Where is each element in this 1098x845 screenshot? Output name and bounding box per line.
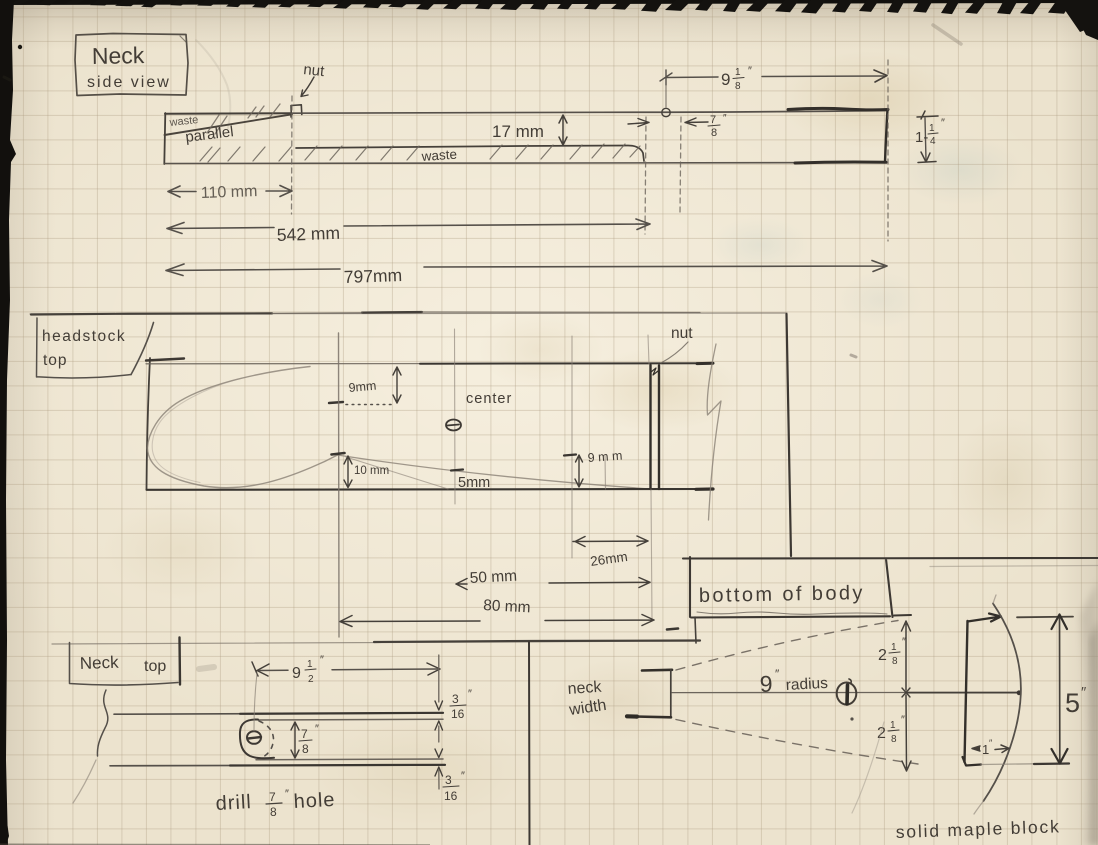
svg-text:7: 7 xyxy=(710,114,716,126)
svg-text:110 mm: 110 mm xyxy=(201,183,258,202)
svg-text:1: 1 xyxy=(735,67,741,78)
svg-text:2: 2 xyxy=(878,647,887,664)
svg-text:nut: nut xyxy=(671,325,693,342)
svg-text:7: 7 xyxy=(269,790,276,804)
svg-text:5: 5 xyxy=(1065,688,1080,718)
svg-text:top: top xyxy=(43,352,68,369)
svg-text:17 mm: 17 mm xyxy=(492,122,544,141)
svg-text:drill: drill xyxy=(215,791,252,815)
svg-text:4: 4 xyxy=(930,136,936,147)
svg-text:8: 8 xyxy=(711,127,717,139)
svg-text:16: 16 xyxy=(444,789,458,803)
svg-text:″: ″ xyxy=(748,65,752,77)
svg-text:8: 8 xyxy=(302,742,309,756)
svg-text:9: 9 xyxy=(759,671,773,697)
svg-text:radius: radius xyxy=(785,675,828,694)
svg-text:9: 9 xyxy=(721,70,730,89)
svg-text:waste: waste xyxy=(168,114,199,129)
svg-text:Neck: Neck xyxy=(79,653,119,673)
svg-text:26mm: 26mm xyxy=(589,549,628,569)
svg-text:″: ″ xyxy=(775,667,780,681)
svg-text:1: 1 xyxy=(891,642,897,653)
svg-text:″: ″ xyxy=(723,113,727,124)
svg-text:10 mm: 10 mm xyxy=(354,465,389,477)
svg-text:″: ″ xyxy=(285,788,289,800)
svg-text:width: width xyxy=(567,697,607,719)
svg-text:″: ″ xyxy=(901,714,905,726)
svg-text:8: 8 xyxy=(735,81,741,92)
svg-text:top: top xyxy=(144,658,166,675)
svg-text:″: ″ xyxy=(468,688,472,700)
svg-text:8: 8 xyxy=(891,734,897,745)
svg-text:2: 2 xyxy=(308,674,314,685)
svg-text:9: 9 xyxy=(292,665,301,682)
svg-text:″: ″ xyxy=(461,770,465,782)
svg-text:1-: 1- xyxy=(915,129,928,146)
svg-text:″: ″ xyxy=(989,738,993,748)
svg-text:solid maple block: solid maple block xyxy=(895,816,1060,842)
svg-text:″: ″ xyxy=(902,636,906,648)
svg-text:Neck: Neck xyxy=(92,42,145,69)
svg-text:797mm: 797mm xyxy=(343,265,402,287)
svg-text:5mm: 5mm xyxy=(458,475,490,491)
svg-text:7: 7 xyxy=(301,727,308,741)
svg-text:1: 1 xyxy=(307,659,313,670)
svg-text:hole: hole xyxy=(293,789,336,813)
svg-text:3: 3 xyxy=(445,773,452,787)
svg-text:50 mm: 50 mm xyxy=(469,568,517,587)
svg-text:1: 1 xyxy=(890,720,896,731)
svg-text:neck: neck xyxy=(567,679,603,698)
svg-text:″: ″ xyxy=(941,117,945,129)
svg-text:″: ″ xyxy=(315,723,319,735)
svg-text:9mm: 9mm xyxy=(348,379,377,395)
svg-text:center: center xyxy=(466,391,512,407)
svg-text:″: ″ xyxy=(320,654,324,666)
svg-text:542 mm: 542 mm xyxy=(276,223,340,245)
svg-text:8: 8 xyxy=(892,656,898,667)
svg-text:bottom of body: bottom of body xyxy=(699,582,865,607)
svg-text:3: 3 xyxy=(452,692,459,706)
svg-text:2: 2 xyxy=(877,725,886,742)
svg-text:waste: waste xyxy=(420,147,457,164)
svg-text:side view: side view xyxy=(87,74,171,91)
svg-text:headstock: headstock xyxy=(42,328,126,345)
svg-text:16: 16 xyxy=(451,707,465,721)
svg-text:1: 1 xyxy=(929,123,935,134)
svg-text:8: 8 xyxy=(270,805,277,819)
svg-text:80 mm: 80 mm xyxy=(483,597,531,616)
